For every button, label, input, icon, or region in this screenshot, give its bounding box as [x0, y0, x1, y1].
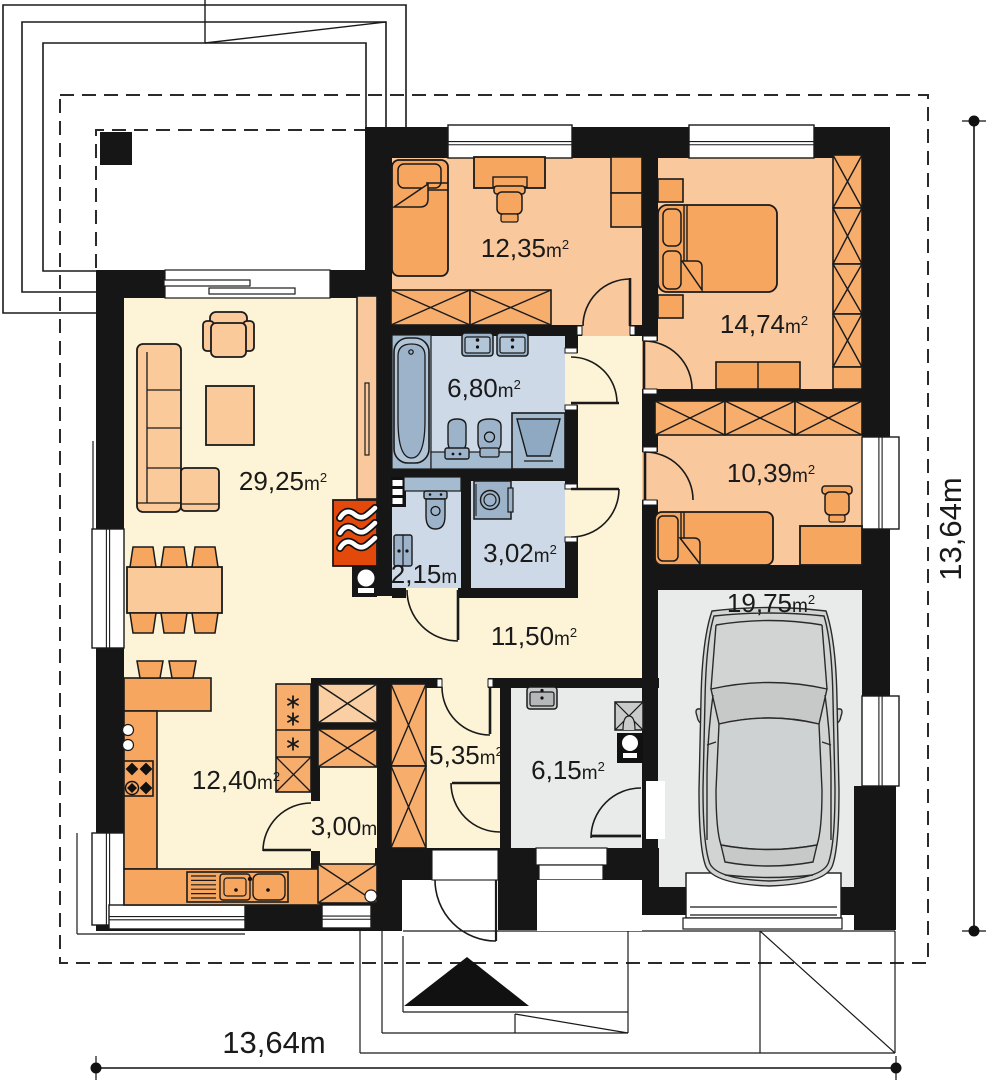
svg-text:13,64m: 13,64m	[933, 477, 968, 580]
svg-text:13,64m: 13,64m	[222, 1025, 325, 1060]
